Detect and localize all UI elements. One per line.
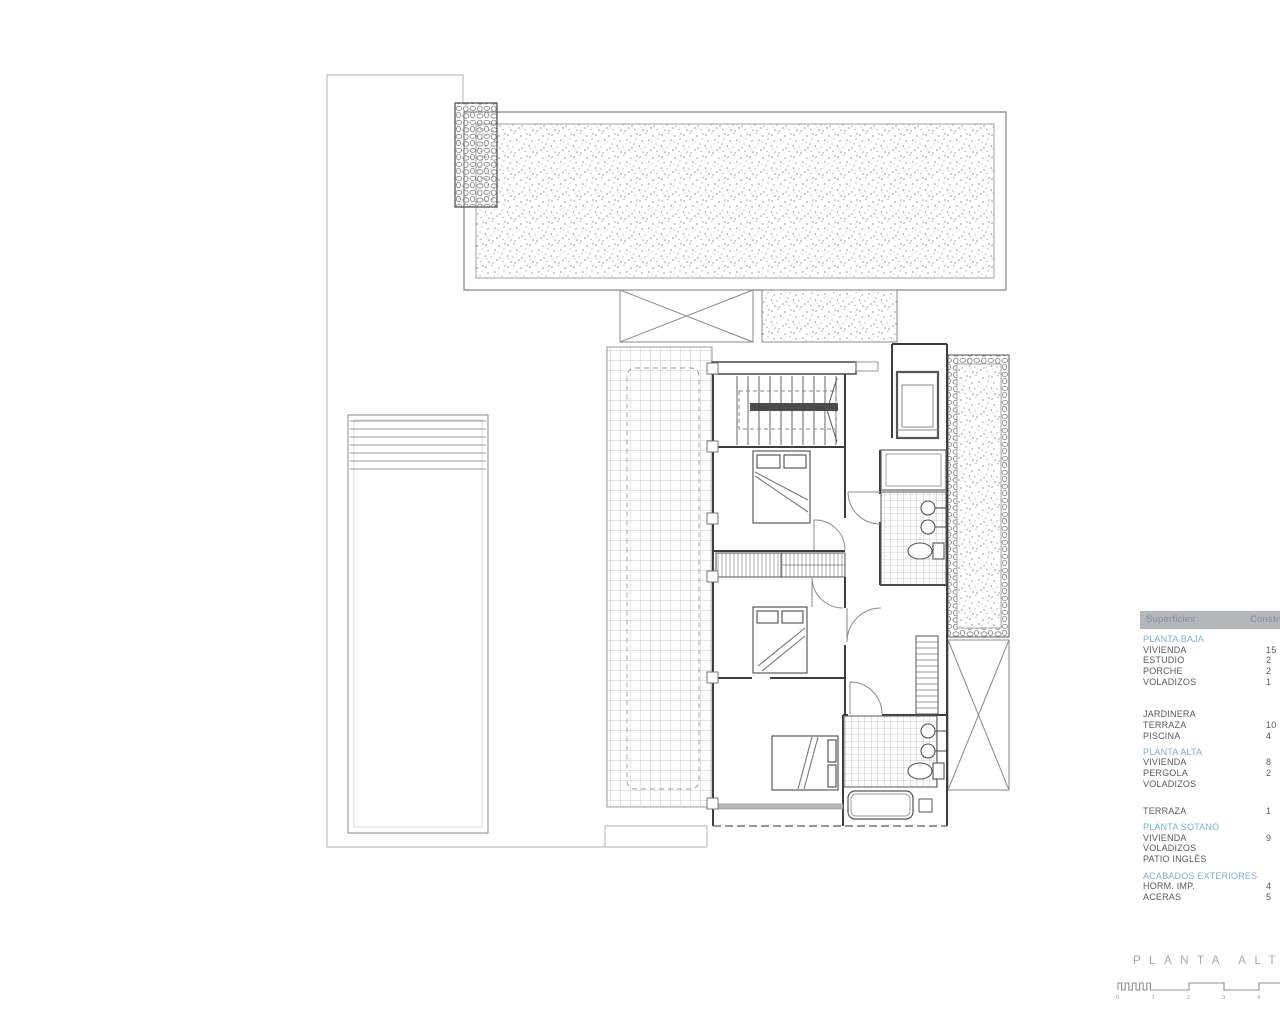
sliding-window [716,804,843,809]
scale-bar: 0 1 2 3 4 [1116,983,1280,1001]
stair-handrail [750,403,838,411]
table-row: VIVIENDA9 [1140,833,1280,844]
bathtub [848,791,932,819]
table-row: VOLADIZOS [1140,843,1280,854]
col-construida: Constru [1250,611,1280,629]
table-row: PORCHE2 [1140,666,1280,677]
scale-tick-3: 3 [1222,995,1225,1001]
scale-tick-4: 4 [1257,995,1260,1001]
section-planta-baja: PLANTA BAJA [1140,634,1280,645]
pool-steps [350,421,486,469]
wardrobe [897,372,938,438]
scale-tick-2: 2 [1187,995,1190,1001]
table-row: PERGOLA2 [1140,768,1280,779]
table-row: TERRAZA1 [1140,806,1280,817]
bathroom-2 [844,716,946,819]
bathroom-2-toilet [908,763,944,779]
staircase [737,376,838,445]
closet [716,553,845,577]
gravel-strip [762,290,897,342]
table-row: ACERAS5 [1140,892,1280,903]
areas-table-header: Superficies Constru [1140,611,1280,629]
areas-table: Superficies Constru PLANTA BAJA VIVIENDA… [1140,611,1280,903]
table-row: TERRAZA10 [1140,720,1280,731]
areas-table-rows: PLANTA BAJA VIVIENDA15 ESTUDIO2 PORCHE2 … [1140,634,1280,903]
shower [881,450,946,490]
table-row: VIVIENDA8 [1140,757,1280,768]
table-row: HORM. IMP.4 [1140,881,1280,892]
col-superficies: Superficies [1146,614,1195,625]
floor-plan-drawing: 0 1 2 3 4 [0,0,1280,1024]
bathroom-1-toilet [908,543,944,559]
stone-wall [455,103,497,207]
bed-1 [753,451,810,523]
roof-deck [464,112,1006,290]
skylight-crossed-box [620,290,753,342]
bathroom-1 [881,492,946,585]
floor-plan-sheet: { "header": { "col_superficies": "Superf… [0,0,1280,1024]
scale-tick-1: 1 [1152,995,1155,1001]
table-row: ESTUDIO2 [1140,655,1280,666]
planter-box [948,355,1009,637]
table-row: VOLADIZOS [1140,779,1280,790]
section-planta-alta: PLANTA ALTA [1140,747,1280,758]
scale-tick-0: 0 [1116,995,1119,1001]
bed-3 [772,736,838,790]
pergola [607,347,712,807]
void-crossed-box [948,640,1009,790]
section-planta-sotano: PLANTA SOTANO [1140,822,1280,833]
door-swings [812,492,882,714]
table-row: JARDINERA [1140,709,1280,720]
door-lintel [856,362,878,371]
table-row: VIVIENDA15 [1140,645,1280,656]
sheet-title: PLANTA ALTA [1133,955,1280,967]
table-row: PISCINA4 [1140,731,1280,742]
table-row: PATIO INGLÉS [1140,854,1280,865]
section-acabados-exteriores: ACABADOS EXTERIORES [1140,871,1280,882]
swimming-pool [348,415,488,833]
bed-2 [753,607,807,673]
ladder-shaft [916,636,938,714]
table-row: VOLADIZOS1 [1140,677,1280,688]
